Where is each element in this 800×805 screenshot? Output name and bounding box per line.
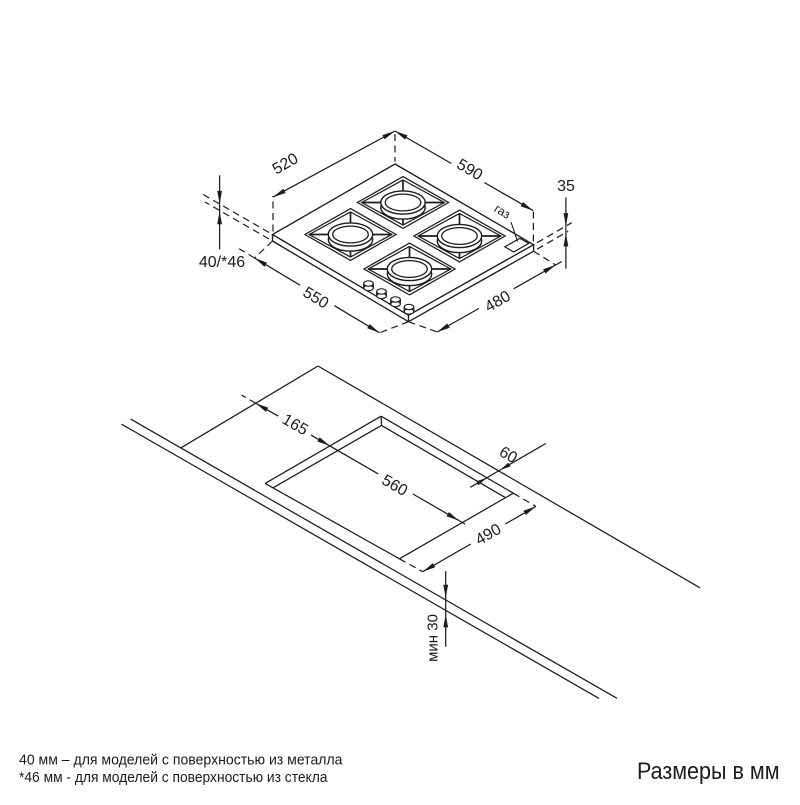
svg-text:мин 30: мин 30	[425, 614, 442, 662]
svg-text:35: 35	[557, 178, 575, 195]
svg-text:40 мм – для моделей с поверхно: 40 мм – для моделей с поверхностью из ме…	[19, 752, 343, 769]
svg-text:40/*46: 40/*46	[199, 254, 245, 271]
svg-text:Размеры в мм: Размеры в мм	[637, 758, 780, 785]
svg-text:*46 мм - для моделей с поверхн: *46 мм - для моделей с поверхностью из с…	[19, 769, 328, 786]
